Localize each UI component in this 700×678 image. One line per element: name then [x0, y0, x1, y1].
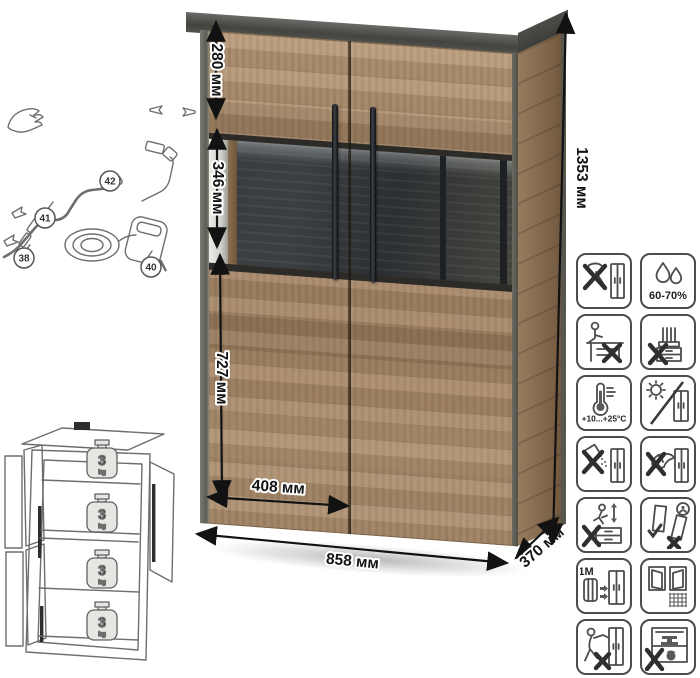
care-icon-temperature: +10...+25°C [576, 375, 632, 431]
open-window-icon [644, 562, 692, 610]
furniture-spec-sheet: 280 мм 346 мм 727 мм 408 мм 858 мм 370 м… [0, 0, 700, 678]
svg-text:3: 3 [98, 506, 106, 522]
svg-text:3: 3 [98, 562, 106, 578]
no-heavy-load-icon [644, 623, 692, 671]
glass-frame-post [440, 156, 446, 280]
door-handle-right [370, 106, 376, 282]
care-icon-no-abrasive-cleaners [576, 436, 632, 492]
care-icon-humidity: 60-70% [640, 253, 696, 309]
care-icon-no-sharp-tools [576, 253, 632, 309]
no-abrasive-powder-icon [580, 440, 628, 488]
svg-text:41: 41 [39, 214, 51, 225]
no-sunlight-icon [644, 379, 692, 427]
interior-frame [228, 140, 237, 265]
svg-text:+10...+25°C: +10...+25°C [582, 414, 627, 424]
cabinet-left-edge [200, 30, 209, 524]
shelf-weight-badge: 3 kg [87, 494, 117, 532]
no-stacking-icon [644, 318, 692, 366]
svg-text:40: 40 [145, 263, 157, 274]
care-icon-carry-upright [640, 497, 696, 553]
hand-icon [8, 109, 43, 132]
care-icon-grid: 60-70% [576, 253, 696, 675]
cabinet-side-panel [518, 31, 566, 546]
shelf-weight-badge: 3 kg [87, 440, 117, 478]
shelf-weight-badge: 3 kg [87, 602, 117, 640]
svg-text:≥1M: ≥1M [580, 566, 594, 578]
callout-40: 40 [141, 251, 161, 277]
axe-crossed-icon [580, 257, 628, 305]
svg-text:kg: kg [98, 469, 106, 476]
led-cable-diagram: 42 41 38 40 [0, 95, 200, 285]
no-climbing-icon [580, 501, 628, 549]
care-icon-no-direct-sunlight [640, 375, 696, 431]
no-sponge-icon [644, 440, 692, 488]
power-adapter-icon [65, 146, 178, 276]
svg-text:38: 38 [18, 254, 30, 265]
shelf-weight-badge: 3 kg [87, 550, 117, 588]
no-sitting-icon [580, 318, 628, 366]
cabinet-front [200, 30, 518, 546]
interior-side-glass [206, 138, 228, 264]
svg-text:kg: kg [98, 579, 106, 586]
callout-42: 42 [100, 171, 120, 191]
svg-text:42: 42 [104, 177, 116, 188]
no-hanging-on-door-icon [580, 623, 628, 671]
care-icon-no-climbing [576, 497, 632, 553]
thermometer-icon: +10...+25°C [580, 379, 628, 427]
cabinet-right-edge [512, 53, 518, 546]
water-drops-icon: 60-70% [644, 257, 692, 305]
shelf-load-drawing: 3 kg 3 kg 3 kg 3 kg [2, 418, 188, 678]
care-icon-ventilation [640, 558, 696, 614]
svg-text:3: 3 [98, 452, 106, 468]
care-icon-heat-distance: ≥1M [576, 558, 632, 614]
care-icon-no-heavy-objects-inside [640, 619, 696, 675]
glass-frame-post [500, 160, 507, 285]
door-seam [348, 41, 351, 534]
care-icon-no-pulling-doors [576, 619, 632, 675]
svg-text:kg: kg [98, 523, 106, 530]
door-handle-left [332, 104, 338, 280]
carry-upright-icon [644, 501, 692, 549]
care-icon-no-abrasive-sponge [640, 436, 696, 492]
care-icon-no-stacking [640, 314, 696, 370]
callout-41: 41 [35, 202, 55, 228]
svg-text:3: 3 [98, 614, 106, 630]
direction-arrows-icon [4, 106, 195, 246]
svg-text:kg: kg [98, 631, 106, 638]
care-icon-no-sitting [576, 314, 632, 370]
radiator-distance-icon: ≥1M [580, 562, 628, 610]
svg-text:60-70%: 60-70% [649, 290, 687, 302]
